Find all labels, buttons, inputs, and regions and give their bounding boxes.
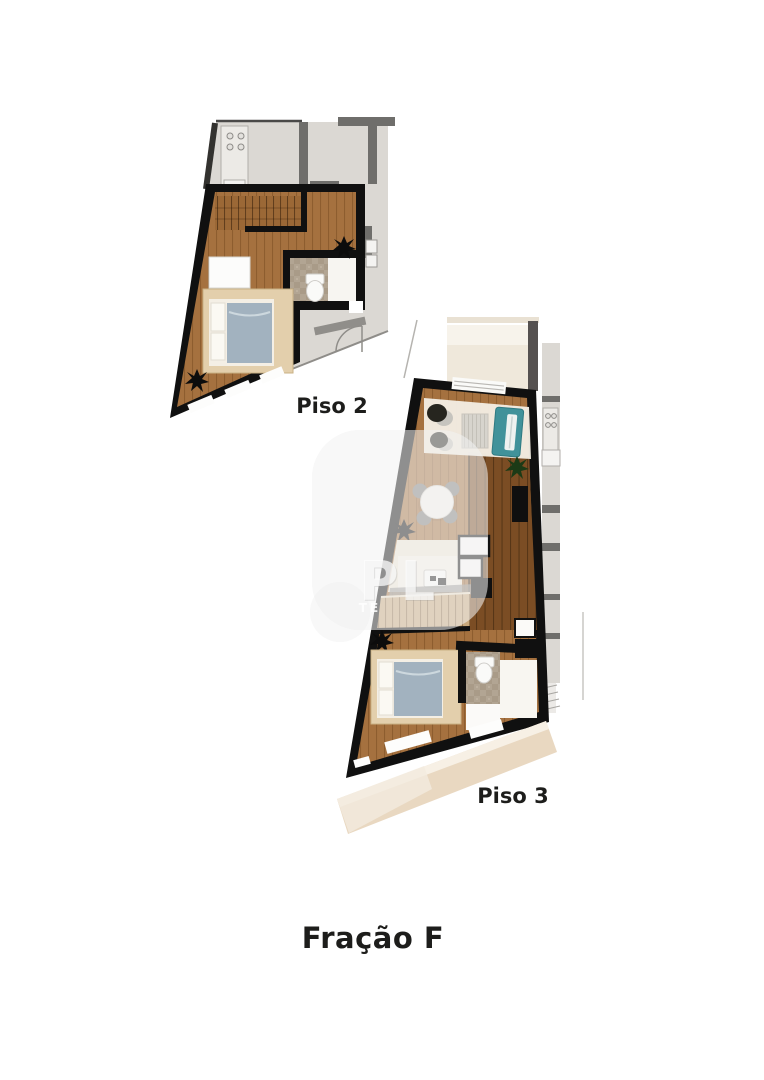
piso2-bathroom bbox=[283, 250, 356, 302]
sink-area bbox=[328, 258, 356, 301]
sofa-icon bbox=[492, 407, 524, 457]
piso2-bed bbox=[203, 289, 293, 373]
watermark-text-bottom: TE bbox=[359, 601, 381, 615]
floor-plan-sheet: Piso 2 bbox=[0, 0, 764, 1080]
piso2-unit bbox=[170, 184, 365, 418]
bed-mattress bbox=[394, 662, 442, 716]
piso2-closet bbox=[209, 257, 250, 288]
bed-pillow bbox=[379, 690, 393, 715]
console-table bbox=[512, 486, 528, 522]
floor-label-piso-2: Piso 2 bbox=[296, 394, 367, 418]
fraction-title: Fração F bbox=[302, 921, 444, 955]
bed-pillow bbox=[211, 333, 225, 360]
bed-pillow bbox=[211, 303, 225, 331]
context-kitchen bbox=[543, 408, 558, 452]
bed-pillow bbox=[379, 662, 393, 688]
piso3-bed bbox=[371, 650, 461, 724]
floor-plan-drawing: Piso 2 bbox=[0, 0, 764, 1080]
bed-mattress bbox=[227, 303, 272, 363]
piso2-plan: Piso 2 bbox=[170, 117, 395, 418]
sink-area bbox=[500, 660, 537, 718]
piso2-stairs bbox=[215, 192, 307, 232]
chair-icon bbox=[427, 404, 447, 422]
watermark: PL PL TE bbox=[310, 430, 488, 642]
toilet-icon bbox=[306, 274, 324, 302]
floor-label-piso-3: Piso 3 bbox=[477, 784, 548, 808]
